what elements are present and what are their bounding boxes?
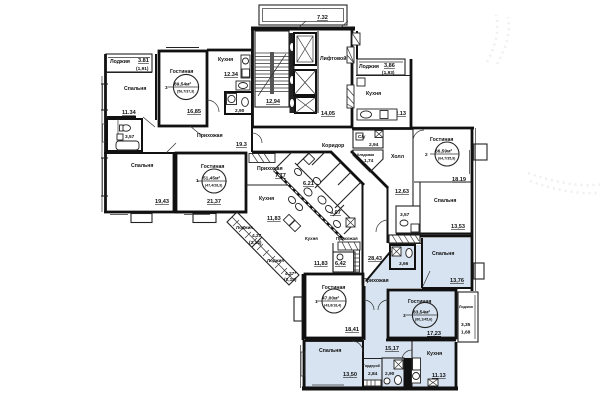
svg-text:Спальня: Спальня <box>319 348 341 354</box>
svg-text:13,50: 13,50 <box>343 372 357 378</box>
svg-text:19,43: 19,43 <box>155 199 169 205</box>
svg-text:С/у: С/у <box>358 134 366 140</box>
svg-text:Лоджия: Лоджия <box>110 59 130 65</box>
svg-text:Лоджия: Лоджия <box>459 305 473 309</box>
svg-text:4,27: 4,27 <box>252 233 262 239</box>
svg-text:Кухня: Кухня <box>259 196 274 202</box>
svg-text:Кухня: Кухня <box>218 57 233 63</box>
svg-text:Прихожая: Прихожая <box>257 166 283 172</box>
svg-text:2,90: 2,90 <box>235 108 245 114</box>
svg-text:16,85: 16,85 <box>187 109 201 115</box>
svg-text:12,63: 12,63 <box>395 189 409 195</box>
svg-text:Прихожая: Прихожая <box>363 278 389 284</box>
svg-text:1: 1 <box>315 299 318 305</box>
svg-text:13,76: 13,76 <box>450 278 464 284</box>
svg-text:(2,14): (2,14) <box>249 240 262 246</box>
svg-text:Коридор: Коридор <box>322 143 344 149</box>
svg-text:17,23: 17,23 <box>427 331 441 337</box>
svg-text:2,90: 2,90 <box>385 371 395 377</box>
svg-text:1,74: 1,74 <box>364 158 374 164</box>
svg-text:11.34: 11.34 <box>122 110 137 116</box>
svg-text:Гостиная: Гостиная <box>322 285 345 291</box>
svg-text:11,83: 11,83 <box>267 216 281 222</box>
svg-text:12.34: 12.34 <box>224 72 239 78</box>
svg-text:Лоджия: Лоджия <box>267 258 284 263</box>
svg-text:15,17: 15,17 <box>385 346 399 352</box>
svg-text:3: 3 <box>403 313 406 319</box>
svg-text:Спальня: Спальня <box>434 198 456 204</box>
svg-text:Спальня: Спальня <box>124 86 146 92</box>
svg-text:3,86: 3,86 <box>384 63 395 69</box>
svg-text:66,59м²: 66,59м² <box>435 149 453 155</box>
svg-text:(1,91): (1,91) <box>136 66 149 72</box>
svg-text:3.81: 3.81 <box>138 58 149 64</box>
svg-text:Лифтовой: Лифтовой <box>320 55 346 62</box>
svg-text:Холл: Холл <box>391 154 404 160</box>
svg-text:83,54м²: 83,54м² <box>413 310 431 316</box>
svg-text:(2,14): (2,14) <box>284 277 297 283</box>
svg-text:Гардероб: Гардероб <box>363 364 381 368</box>
svg-text:7.32: 7.32 <box>317 15 328 21</box>
svg-text:(47,4/28,3): (47,4/28,3) <box>205 184 223 188</box>
svg-text:14,05: 14,05 <box>321 111 335 117</box>
svg-text:(56,7/37,3): (56,7/37,3) <box>177 90 195 94</box>
svg-text:3: 3 <box>165 85 168 91</box>
svg-text:Спальня: Спальня <box>432 251 454 257</box>
svg-text:Кухня: Кухня <box>305 236 318 241</box>
svg-text:Гостиная: Гостиная <box>170 69 193 75</box>
svg-text:2,84: 2,84 <box>368 371 378 377</box>
svg-text:6,42: 6,42 <box>335 261 346 267</box>
svg-text:47,00м²: 47,00м² <box>322 296 340 302</box>
svg-text:1,68: 1,68 <box>461 330 471 336</box>
svg-text:3,57: 3,57 <box>400 212 410 218</box>
svg-text:Прихожая: Прихожая <box>336 236 358 241</box>
svg-text:18.19: 18.19 <box>452 177 466 183</box>
svg-text:3,57: 3,57 <box>125 134 135 140</box>
svg-text:13,53: 13,53 <box>451 224 465 230</box>
svg-text:19.3: 19.3 <box>236 142 247 148</box>
svg-text:Кухня: Кухня <box>427 351 442 357</box>
svg-text:Лоджия: Лоджия <box>359 64 379 70</box>
svg-text:21,37: 21,37 <box>207 199 221 205</box>
svg-text:3,66: 3,66 <box>399 261 409 267</box>
svg-text:18,41: 18,41 <box>345 327 359 333</box>
svg-text:12,94: 12,94 <box>266 99 281 105</box>
svg-text:Лоджия: Лоджия <box>236 225 253 230</box>
svg-text:(64,7/35,9): (64,7/35,9) <box>438 157 456 161</box>
svg-text:51,45м²: 51,45м² <box>203 176 221 182</box>
svg-text:89,54м²: 89,54м² <box>174 82 192 88</box>
svg-text:4,27*: 4,27* <box>285 271 296 277</box>
svg-text:11.13: 11.13 <box>432 373 446 379</box>
svg-text:2: 2 <box>425 152 428 158</box>
svg-text:6.21: 6.21 <box>303 181 314 187</box>
svg-text:2,94: 2,94 <box>369 142 379 148</box>
svg-text:28,43: 28,43 <box>368 256 382 262</box>
svg-text:Кухня: Кухня <box>366 91 381 97</box>
svg-text:(80,1/45,6): (80,1/45,6) <box>415 318 433 322</box>
svg-text:Кладовая: Кладовая <box>357 153 374 157</box>
svg-text:Спальня: Спальня <box>131 163 153 169</box>
svg-text:11,83: 11,83 <box>314 261 328 267</box>
svg-text:(43,8/18,4): (43,8/18,4) <box>324 304 342 308</box>
svg-text:3,35: 3,35 <box>461 322 471 328</box>
svg-text:Прихожая: Прихожая <box>197 133 223 139</box>
